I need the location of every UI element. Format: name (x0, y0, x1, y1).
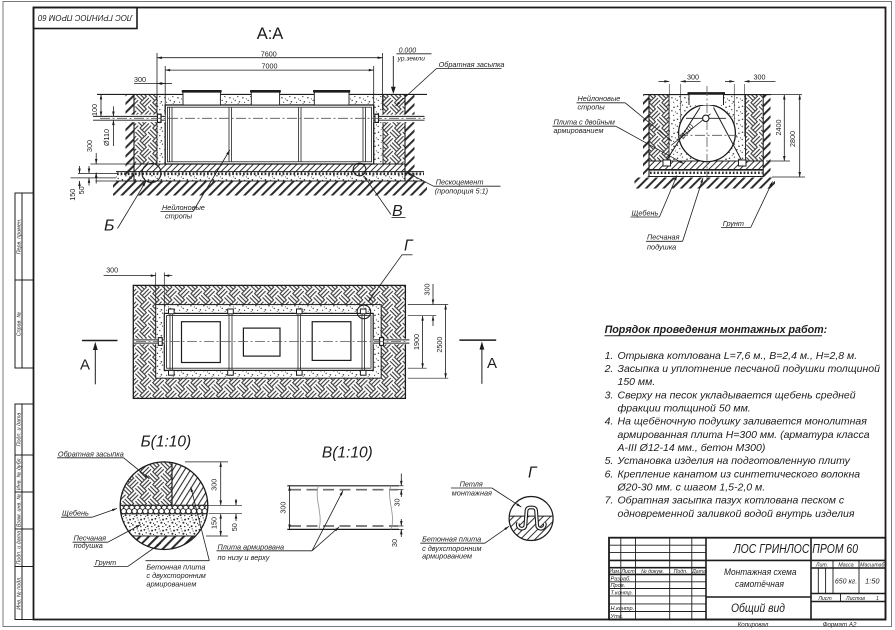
svg-text:300: 300 (134, 75, 146, 84)
svg-text:Сверху на песок укладывается щ: Сверху на песок укладывается щебень сред… (618, 389, 856, 401)
svg-text:стропы: стропы (578, 102, 606, 111)
svg-text:7600: 7600 (261, 49, 277, 58)
svg-text:Монтажная схема: Монтажная схема (724, 567, 797, 578)
svg-text:Н.контр.: Н.контр. (611, 606, 635, 612)
svg-text:30: 30 (390, 539, 399, 547)
svg-text:100: 100 (90, 104, 99, 116)
svg-text:300: 300 (210, 479, 219, 491)
svg-text:Отрывка котлована L=7,6 м., В=: Отрывка котлована L=7,6 м., В=2,4 м., Н=… (618, 350, 858, 362)
svg-text:Т.контр.: Т.контр. (611, 591, 634, 597)
svg-text:Грунт: Грунт (723, 219, 744, 228)
svg-text:Б(1:10): Б(1:10) (141, 434, 192, 451)
svg-text:Обратная засыпка пазух котлова: Обратная засыпка пазух котлована песком … (618, 495, 845, 507)
svg-text:1.: 1. (605, 350, 614, 362)
svg-text:Лист: Лист (620, 569, 635, 575)
svg-text:В: В (392, 203, 403, 220)
svg-text:Щебень: Щебень (62, 509, 89, 518)
svg-text:Ø110: Ø110 (102, 129, 111, 146)
svg-text:Формат А2: Формат А2 (823, 621, 857, 628)
svg-text:Листов: Листов (845, 596, 865, 602)
svg-text:Справ. №: Справ. № (17, 312, 23, 337)
svg-text:5.: 5. (605, 455, 614, 467)
svg-text:2800: 2800 (788, 131, 797, 147)
svg-text:ур.земли: ур.земли (397, 55, 426, 62)
svg-text:Подп. и дата: Подп. и дата (17, 531, 23, 565)
svg-text:Масштаб: Масштаб (860, 562, 885, 568)
svg-text:А: А (80, 356, 90, 373)
svg-text:Дата: Дата (691, 569, 706, 575)
svg-text:300: 300 (687, 72, 699, 81)
svg-text:Подп. и дата: Подп. и дата (17, 413, 23, 447)
svg-text:300: 300 (85, 140, 94, 152)
svg-text:Перв. примен.: Перв. примен. (17, 219, 23, 255)
svg-text:150: 150 (210, 517, 219, 529)
svg-text:7.: 7. (605, 495, 614, 507)
svg-text:650 кг.: 650 кг. (835, 579, 857, 586)
svg-text:стропы: стропы (165, 212, 193, 221)
svg-text:А:А: А:А (257, 25, 284, 43)
svg-text:В(1:10): В(1:10) (322, 445, 373, 462)
svg-text:1:50: 1:50 (865, 577, 880, 586)
svg-text:2.: 2. (604, 363, 614, 375)
svg-text:Лист: Лист (817, 596, 832, 602)
svg-text:300: 300 (279, 502, 288, 514)
svg-text:300: 300 (106, 266, 118, 275)
svg-text:150: 150 (68, 189, 77, 201)
svg-text:по низу и верху: по низу и верху (218, 553, 271, 562)
svg-text:Копировал: Копировал (738, 621, 769, 628)
svg-text:1900: 1900 (412, 334, 421, 350)
svg-text:Б: Б (104, 218, 114, 235)
svg-text:(пропорция 5:1): (пропорция 5:1) (435, 186, 488, 195)
svg-text:2500: 2500 (435, 337, 444, 353)
svg-text:4.: 4. (605, 416, 614, 428)
svg-text:Петля: Петля (460, 480, 483, 489)
svg-text:50: 50 (77, 186, 86, 194)
svg-text:ЛОС ГРИНЛОС ПРОМ 60: ЛОС ГРИНЛОС ПРОМ 60 (733, 542, 858, 556)
svg-text:Засыпка и уплотнение песчаной: Засыпка и уплотнение песчаной подушки то… (618, 363, 881, 375)
svg-text:фракции толщиной 50 мм.: фракции толщиной 50 мм. (618, 403, 751, 415)
svg-text:Общий вид: Общий вид (731, 601, 785, 615)
svg-text:Щебень: Щебень (632, 209, 659, 218)
svg-text:7000: 7000 (262, 62, 278, 71)
svg-text:А: А (487, 355, 497, 372)
svg-text:Порядок проведения монтажных р: Порядок проведения монтажных работ: (605, 324, 828, 336)
svg-text:армированная плита Н=300 мм. (: армированная плита Н=300 мм. (арматура к… (618, 429, 870, 441)
svg-text:Изм.: Изм. (609, 569, 620, 575)
svg-text:подушка: подушка (647, 242, 676, 251)
svg-text:Инв. № дубл.: Инв. № дубл. (17, 457, 23, 490)
svg-text:Пескоцемент: Пескоцемент (436, 178, 484, 187)
svg-text:одновременной заливкой водой в: одновременной заливкой водой внутрь изде… (618, 508, 855, 520)
svg-text:Г: Г (404, 238, 414, 255)
svg-text:монтажная: монтажная (452, 488, 492, 497)
svg-text:50: 50 (230, 523, 239, 531)
svg-text:Инв. № подл.: Инв. № подл. (17, 576, 23, 609)
svg-text:самотёчная: самотёчная (735, 579, 784, 590)
svg-text:Установка изделия на подготовл: Установка изделия на подготовленную плит… (617, 455, 851, 467)
svg-text:Масса: Масса (838, 562, 853, 568)
svg-text:3.: 3. (605, 389, 614, 401)
svg-text:300: 300 (754, 72, 766, 81)
svg-text:Г: Г (528, 465, 538, 482)
svg-text:Взам. инв. №: Взам. инв. № (17, 494, 23, 528)
svg-text:армированием: армированием (554, 126, 604, 135)
svg-text:На щебёночную подушку заливает: На щебёночную подушку заливается монолит… (618, 416, 868, 428)
svg-text:Подп.: Подп. (674, 569, 688, 575)
svg-text:2400: 2400 (774, 120, 783, 136)
svg-text:А-III Ø12-14 мм., бетон М300): А-III Ø12-14 мм., бетон М300) (617, 442, 766, 454)
svg-text:№ докум.: № докум. (641, 569, 664, 575)
svg-text:Бетонная плита: Бетонная плита (422, 535, 481, 544)
svg-text:ЛОС ГРИНЛОС ПРОМ 60: ЛОС ГРИНЛОС ПРОМ 60 (37, 13, 133, 22)
svg-text:Пров.: Пров. (611, 583, 626, 589)
svg-text:30: 30 (392, 499, 401, 507)
svg-text:Песчаная: Песчаная (647, 233, 680, 242)
svg-text:Грунт: Грунт (95, 558, 116, 567)
svg-text:6.: 6. (605, 468, 614, 480)
svg-text:Утв.: Утв. (610, 614, 624, 620)
svg-text:Разраб.: Разраб. (611, 576, 631, 582)
svg-text:армированием: армированием (146, 579, 196, 588)
svg-text:0.000: 0.000 (399, 47, 417, 54)
svg-text:Лит.: Лит. (815, 562, 828, 568)
svg-text:300: 300 (423, 284, 432, 296)
svg-text:Обратная засыпка: Обратная засыпка (58, 449, 124, 458)
svg-text:Плита армирована: Плита армирована (218, 542, 285, 551)
svg-text:1: 1 (876, 596, 879, 602)
svg-text:армированием: армированием (422, 551, 472, 560)
svg-text:150 мм.: 150 мм. (618, 376, 656, 388)
svg-text:Ø20-30 мм. с шагом 1,5-2,0 м.: Ø20-30 мм. с шагом 1,5-2,0 м. (617, 482, 766, 494)
svg-text:Крепление канатом из синтетиче: Крепление канатом из синтетического воло… (618, 468, 861, 480)
svg-text:Обратная засыпка: Обратная засыпка (439, 60, 505, 69)
svg-text:подушка: подушка (74, 541, 103, 550)
